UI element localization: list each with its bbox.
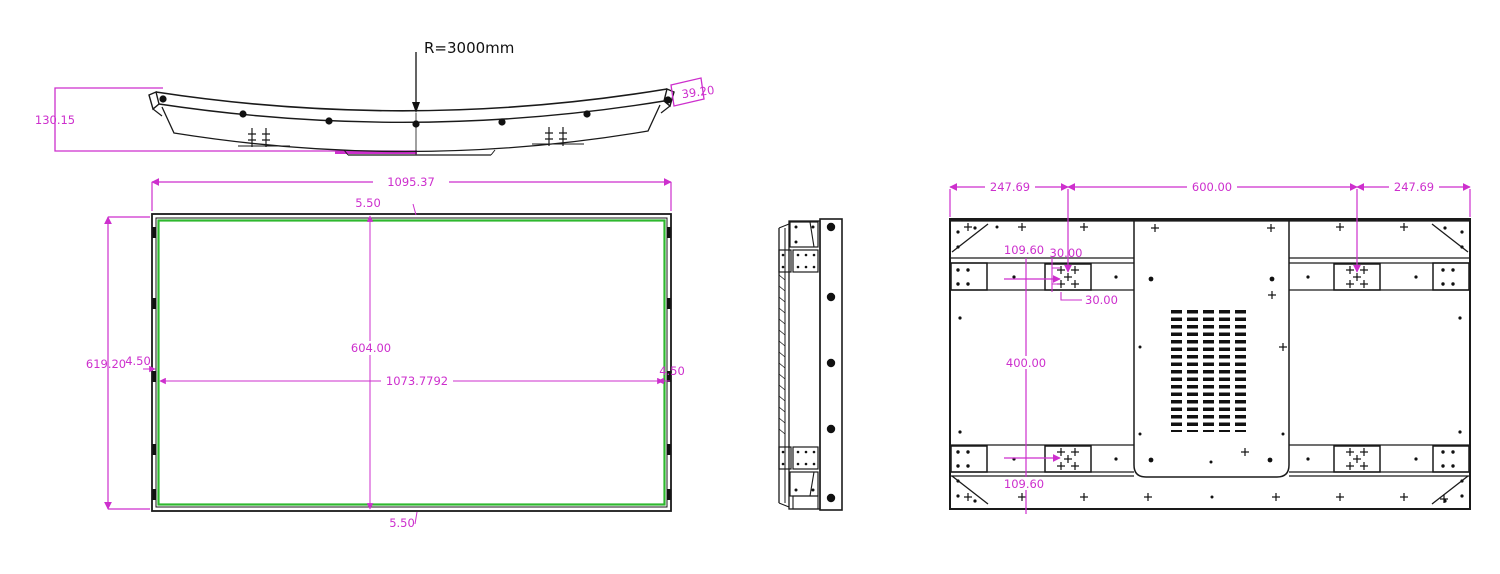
front-view: 1095.37 619.20 604.00 1073.7792 5.50 5.5 xyxy=(86,175,685,530)
overall-width-dimension: 1095.37 xyxy=(152,175,671,211)
active-width-label: 1073.7792 xyxy=(386,374,448,388)
bezel-right-label: 4.50 xyxy=(659,364,685,378)
mount-span-label: 600.00 xyxy=(1192,180,1232,194)
mount-vertical-span-label: 400.00 xyxy=(1006,356,1046,370)
bezel-top-dimension: 5.50 xyxy=(355,196,416,215)
overall-height-label: 619.20 xyxy=(86,357,126,371)
hole-pitch-horizontal-label: 30.00 xyxy=(1085,293,1118,307)
mount-vertical-dimensions: 109.60 400.00 109.60 xyxy=(999,243,1060,514)
radius-callout: R=3000mm xyxy=(412,39,514,155)
bezel-bottom-label: 5.50 xyxy=(389,516,415,530)
display-panel-drawing: 130.15 xyxy=(0,0,1500,574)
curved-panel-profile xyxy=(149,89,674,155)
bracket-clip-marks xyxy=(248,127,567,147)
front-edge-clips xyxy=(153,227,671,500)
front-inner-frame xyxy=(156,218,667,507)
bezel-left-dimension: 4.50 xyxy=(125,354,155,369)
bezel-left-label: 4.50 xyxy=(125,354,151,368)
bezel-bottom-dimension: 5.50 xyxy=(389,512,417,530)
side-view xyxy=(779,219,842,510)
vent-panel xyxy=(1134,220,1289,477)
bezel-top-label: 5.50 xyxy=(355,196,381,210)
active-height-label: 604.00 xyxy=(351,341,391,355)
front-outer-frame xyxy=(152,214,671,511)
vent-slots xyxy=(1171,310,1247,432)
hole-pitch-vertical-label: 30.00 xyxy=(1050,246,1083,260)
overall-width-label: 1095.37 xyxy=(387,175,435,189)
mount-top-offset-label: 109.60 xyxy=(1004,243,1044,257)
end-cap-dimension: 39.20 xyxy=(671,78,715,106)
depth-dimension-label: 130.15 xyxy=(35,113,75,127)
radius-label: R=3000mm xyxy=(424,39,514,57)
side-cover-holes xyxy=(827,223,835,502)
side-chassis xyxy=(789,221,820,509)
hole-pitch-dimensions: 30.00 30.00 xyxy=(1050,246,1118,307)
active-width-dimension: 1073.7792 xyxy=(160,374,663,388)
mount-offset-right-label: 247.69 xyxy=(1394,180,1434,194)
end-cap-dimension-label: 39.20 xyxy=(681,83,716,101)
mount-bottom-offset-label: 109.60 xyxy=(1004,477,1044,491)
engineering-drawing-canvas: 130.15 xyxy=(0,0,1500,574)
top-view: 130.15 xyxy=(35,39,715,155)
active-height-dimension: 604.00 xyxy=(346,216,396,509)
back-view: 247.69 600.00 247.69 109.60 400.00 109.6… xyxy=(950,180,1470,514)
mount-offset-left-label: 247.69 xyxy=(990,180,1030,194)
active-area-outline xyxy=(159,221,665,505)
